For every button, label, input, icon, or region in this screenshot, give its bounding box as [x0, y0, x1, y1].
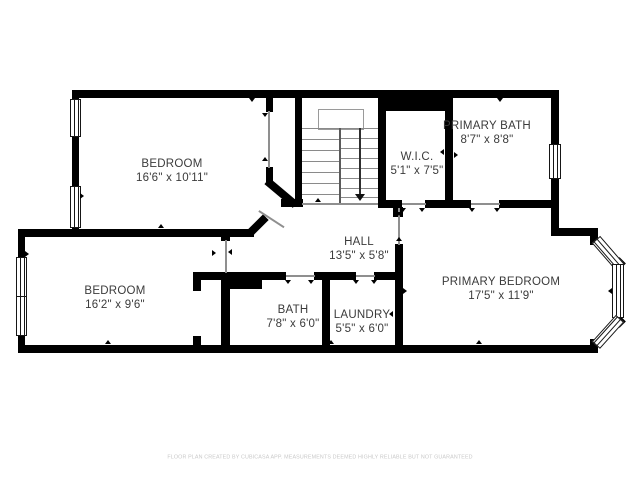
wall-segment [395, 244, 403, 353]
wall-segment [499, 200, 559, 208]
stair-tread [302, 150, 339, 151]
wall-segment [18, 229, 254, 237]
window [592, 315, 624, 349]
wall-segment [445, 94, 453, 206]
wall-segment [193, 272, 201, 291]
stairs-arrow-stem [359, 128, 361, 194]
door-marker-icon [353, 280, 359, 284]
door-marker-icon [608, 288, 612, 294]
door-opening-line [356, 275, 375, 277]
wall-segment [18, 334, 25, 349]
door-marker-icon [328, 340, 334, 344]
door-marker-icon [308, 280, 314, 284]
room-name: BATH [266, 304, 319, 318]
door-marker-icon [410, 105, 416, 109]
room-dims: 5'1" x 7'5" [390, 165, 443, 179]
room-name: BEDROOM [136, 158, 208, 172]
stair-tread [302, 194, 339, 195]
room-dims: 7'8" x 6'0" [266, 318, 319, 332]
room-name: PRIMARY BEDROOM [442, 276, 560, 290]
door-marker-icon [469, 208, 475, 212]
door-opening-line [286, 275, 315, 277]
wall-segment [72, 90, 559, 98]
wall-segment [221, 272, 230, 353]
wall-segment [227, 276, 262, 289]
floor-plan: BEDROOM 16'6" x 10'11" PRIMARY BATH 8'7"… [0, 0, 640, 480]
room-dims: 5'5" x 6'0" [334, 323, 391, 337]
door-opening-line [471, 203, 500, 205]
stair-divider [339, 128, 341, 203]
room-label-wic: W.I.C. 5'1" x 7'5" [390, 151, 443, 178]
wall-segment [18, 229, 25, 259]
door-marker-icon [315, 198, 321, 202]
door-opening-line [225, 240, 227, 273]
door-marker-icon [249, 98, 255, 102]
door-marker-icon [396, 212, 402, 216]
stair-tread [302, 139, 339, 140]
wall-segment [295, 97, 302, 205]
door-marker-icon [228, 249, 232, 255]
door-marker-icon [454, 152, 458, 158]
wall-segment [266, 97, 273, 112]
door-marker-icon [80, 193, 84, 199]
room-name: LAUNDRY [334, 309, 391, 323]
window [16, 296, 27, 336]
wall-segment [374, 272, 403, 280]
window [549, 144, 561, 179]
door-opening-line [302, 203, 378, 205]
door-opening-line [268, 111, 270, 168]
room-name: W.I.C. [390, 151, 443, 165]
door-marker-icon [262, 157, 268, 161]
wall-segment [193, 336, 201, 353]
door-marker-icon [497, 98, 503, 102]
room-label-hall: HALL 13'5" x 5'8" [329, 236, 389, 263]
room-label-primary-bedroom: PRIMARY BEDROOM 17'5" x 11'9" [442, 276, 560, 303]
room-dims: 8'7" x 8'8" [443, 134, 531, 148]
room-label-bedroom-1: BEDROOM 16'6" x 10'11" [136, 158, 208, 185]
stair-tread [302, 128, 339, 129]
wall-segment [314, 272, 356, 280]
door-marker-icon [403, 288, 407, 294]
door-marker-icon [262, 113, 268, 117]
door-marker-icon [212, 250, 216, 256]
wall-segment [248, 214, 269, 235]
stair-tread [302, 183, 339, 184]
room-dims: 16'6" x 10'11" [136, 172, 208, 186]
door-marker-icon [158, 224, 164, 228]
wall-segment [551, 97, 559, 145]
room-dims: 13'5" x 5'8" [329, 250, 389, 264]
room-label-bedroom-2: BEDROOM 16'2" x 9'6" [84, 285, 145, 312]
room-name: BEDROOM [84, 285, 145, 299]
window [612, 264, 624, 318]
wall-segment [18, 345, 598, 353]
stair-tread [302, 161, 339, 162]
stairs-down-arrow-icon [355, 194, 365, 201]
door-marker-icon [396, 237, 402, 241]
room-label-primary-bath: PRIMARY BATH 8'7" x 8'8" [443, 120, 531, 147]
footer-disclaimer: FLOOR PLAN CREATED BY CUBICASA APP. MEAS… [106, 454, 535, 460]
wall-segment [72, 135, 79, 187]
stair-tread [302, 172, 339, 173]
staircase [302, 98, 378, 205]
door-marker-icon [105, 340, 111, 344]
room-dims: 16'2" x 9'6" [84, 299, 145, 313]
wall-segment [445, 200, 471, 208]
room-label-laundry: LAUNDRY 5'5" x 6'0" [334, 309, 391, 336]
room-name: PRIMARY BATH [443, 120, 531, 134]
window [70, 99, 81, 137]
stair-walkline [318, 109, 364, 130]
door-marker-icon [476, 340, 482, 344]
room-dims: 17'5" x 11'9" [442, 290, 560, 304]
room-label-bath: BATH 7'8" x 6'0" [266, 304, 319, 331]
door-opening-line [402, 203, 426, 205]
door-marker-icon [25, 251, 29, 257]
window [16, 257, 27, 297]
door-marker-icon [285, 280, 291, 284]
room-name: HALL [329, 236, 389, 250]
door-marker-icon [371, 280, 377, 284]
door-marker-icon [419, 208, 425, 212]
door-marker-icon [494, 208, 500, 212]
